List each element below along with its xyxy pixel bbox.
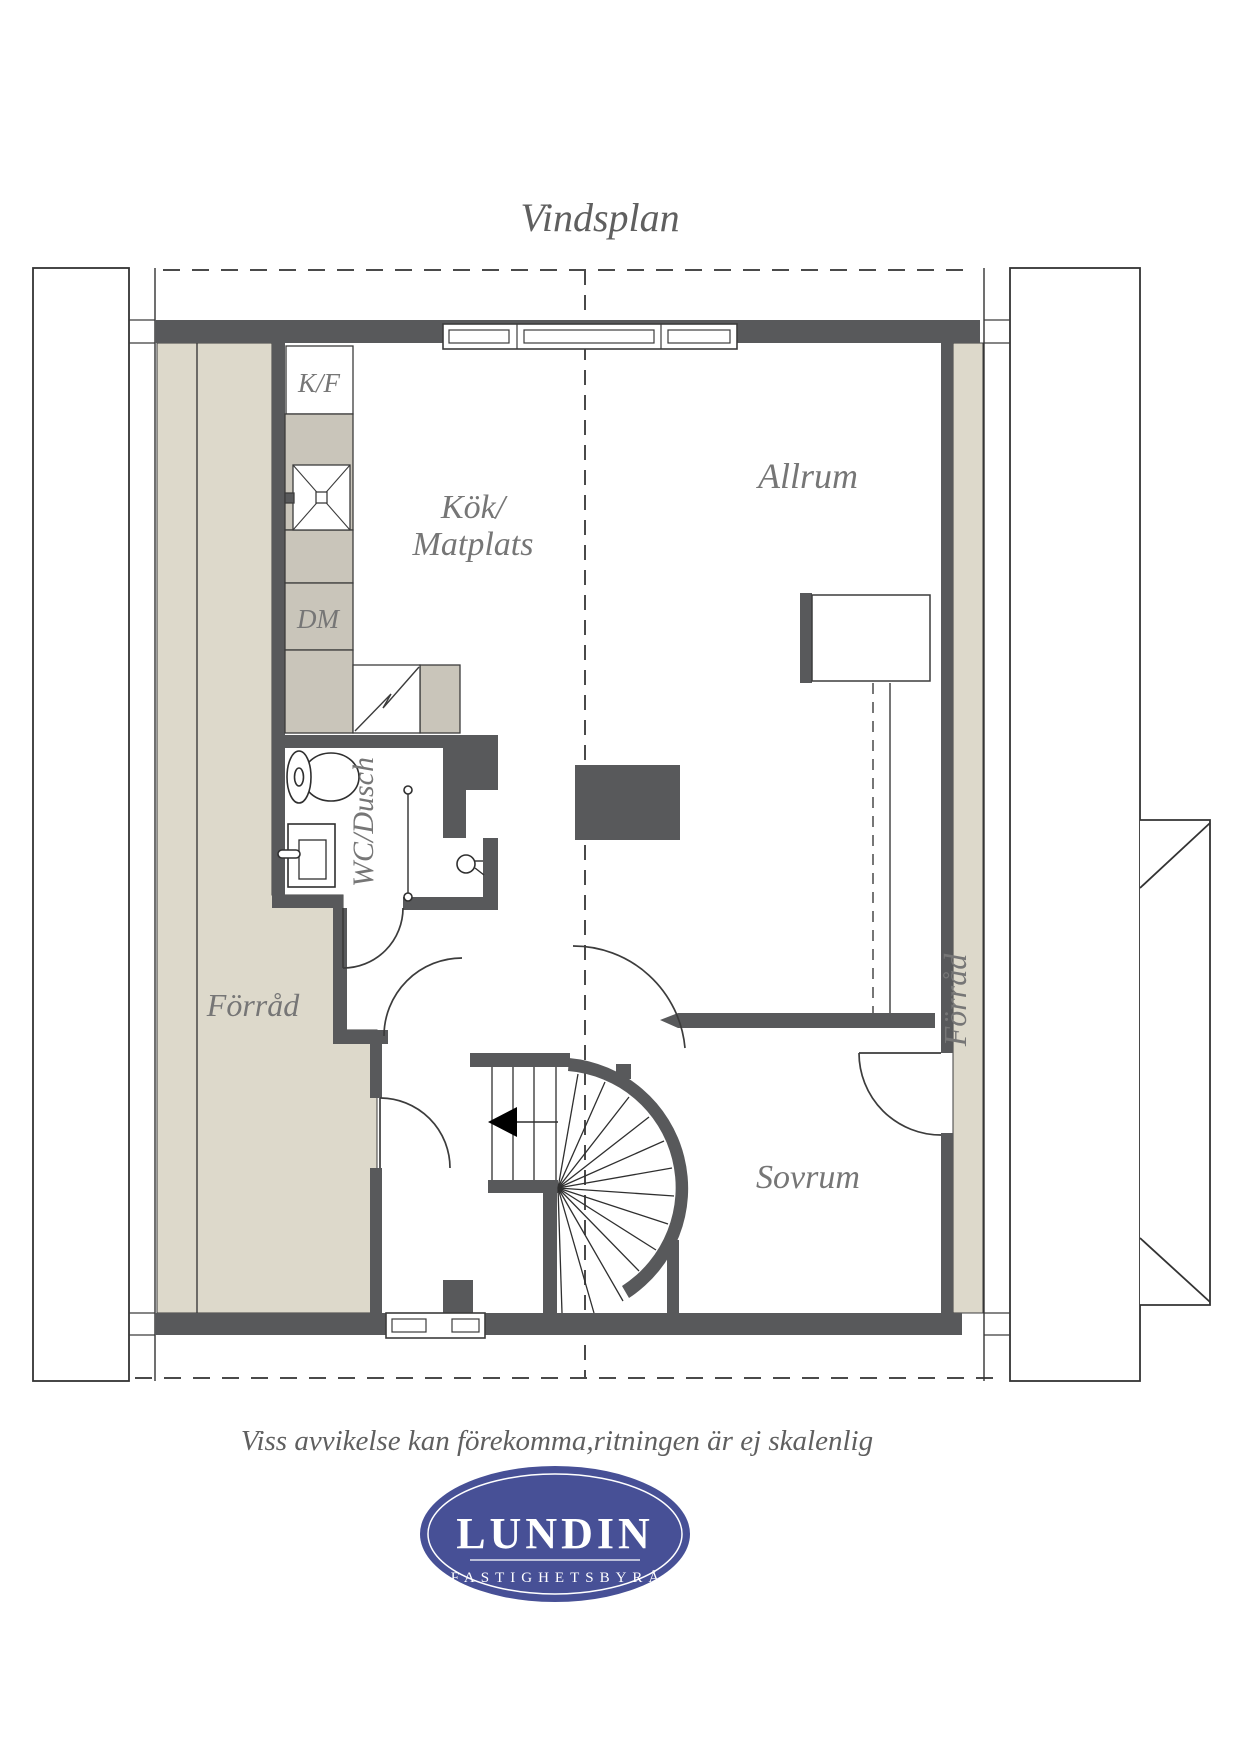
door-wc [343,908,403,968]
outer-gable-left [33,268,155,1381]
room-label-living: Allrum [756,456,858,496]
logo-name: LUNDIN [456,1509,654,1558]
floor-plan-page: Vindsplan [0,0,1240,1754]
counter-opening-icon [353,665,420,733]
room-label-kitchen-2: Matplats [412,526,534,563]
door-allrum [573,946,685,1048]
window-north [443,324,737,349]
chimney [575,765,680,840]
door-hall [384,958,462,1036]
right-bay [1140,820,1210,1305]
stove-icon [285,465,350,530]
door-storage-lower [380,1098,450,1168]
page-title: Vindsplan [520,195,679,240]
room-label-bathroom: WC/Dusch [347,757,380,887]
disclaimer-text: Viss avvikelse kan förekomma,ritningen ä… [241,1425,873,1457]
sink-icon [278,824,335,887]
door-arcs [343,908,941,1168]
room-label-bedroom: Sovrum [756,1159,860,1196]
appliance-label-dishwasher: DM [296,604,340,634]
room-label-kitchen-1: Kök/ [440,489,509,526]
door-sovrum-storage [859,1053,941,1135]
appliance-label-fridge: K/F [297,368,341,398]
room-label-storage-right: Förråd [937,953,973,1047]
floor-plan-drawing: Vindsplan [0,0,1240,1754]
logo-tagline: FASTIGHETSBYRÅ [451,1570,666,1586]
ceiling-slope-lines [873,683,890,1013]
outer-gable-right [984,268,1140,1381]
stair-direction-arrow [488,1107,558,1137]
window-south [386,1313,485,1338]
lundin-logo: LUNDIN FASTIGHETSBYRÅ [420,1466,690,1602]
room-label-storage-left: Förråd [206,987,300,1023]
closet-outline [812,595,930,681]
